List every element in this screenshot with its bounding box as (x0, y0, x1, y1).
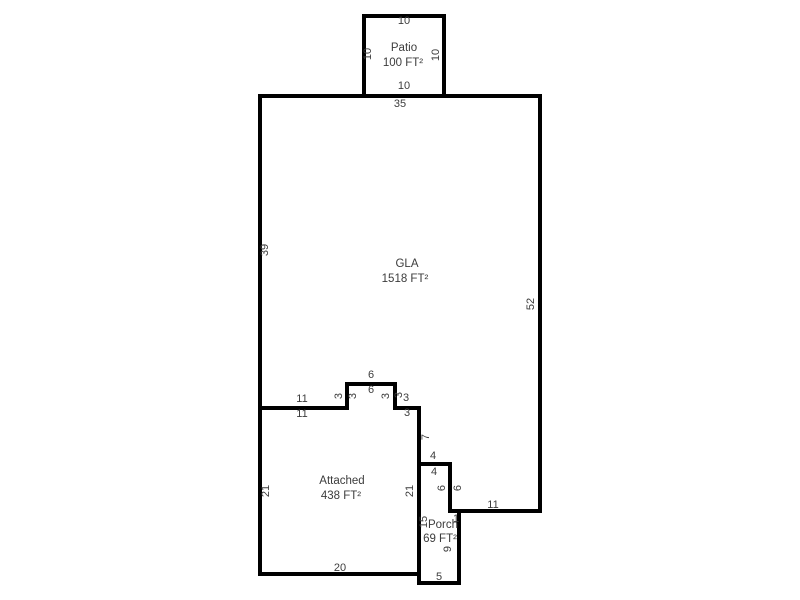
dimension-label: 11 (296, 393, 307, 405)
dimension-label: 7 (420, 434, 432, 440)
dimension-label: 3 (403, 392, 409, 404)
dimension-label: 10 (398, 80, 410, 92)
dimension-label: 4 (431, 466, 437, 478)
area-name-patio: Patio (391, 42, 417, 54)
dimension-label: 4 (430, 450, 436, 462)
dimension-label: 21 (404, 485, 416, 497)
area-size-porch: 69 FT² (423, 533, 457, 545)
dimension-label: 9 (442, 546, 454, 552)
area-size-patio: 100 FT² (383, 57, 423, 69)
dimension-label: 10 (430, 49, 442, 61)
dimension-label: 3 (404, 407, 410, 419)
dimension-label: 6 (436, 485, 448, 491)
dimension-label: 20 (334, 562, 346, 574)
labels-layer: 1010101035395211113366333374466111212115… (259, 15, 537, 583)
area-name-porch: Porch (428, 519, 458, 531)
area-name-gla: GLA (395, 258, 418, 270)
dimension-label: 6 (368, 384, 374, 396)
dimension-label: 11 (296, 408, 307, 420)
dimension-label: 5 (436, 571, 442, 583)
area-name-attached: Attached (319, 475, 364, 487)
dimension-label: 52 (525, 298, 537, 310)
dimension-label: 39 (259, 244, 271, 256)
dimension-label: 3 (347, 393, 359, 399)
dimension-label: 21 (260, 485, 272, 497)
dimension-label: 6 (368, 369, 374, 381)
dimension-label: 35 (394, 98, 406, 110)
dimension-label: 10 (398, 15, 410, 27)
area-size-attached: 438 FT² (321, 490, 361, 502)
dimension-label: 10 (362, 48, 374, 60)
dimension-label: 6 (452, 485, 464, 491)
floor-plan-canvas: 1010101035395211113366333374466111212115… (0, 0, 800, 600)
dimension-label: 11 (487, 499, 498, 511)
area-size-gla: 1518 FT² (382, 273, 429, 285)
floor-plan-page: 1010101035395211113366333374466111212115… (0, 0, 800, 600)
dimension-label: 3 (380, 393, 392, 399)
dimension-label: 3 (333, 393, 345, 399)
